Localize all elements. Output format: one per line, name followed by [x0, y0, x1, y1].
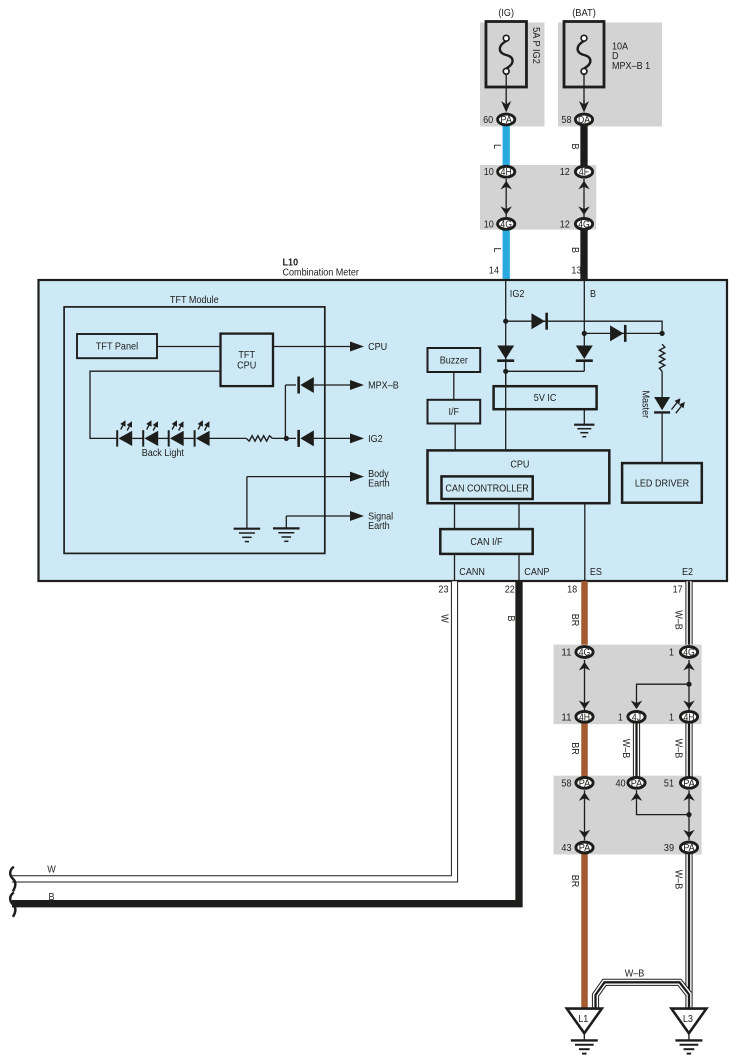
svg-text:CAN I/F: CAN I/F: [470, 537, 502, 548]
svg-text:CPU: CPU: [237, 361, 256, 372]
svg-text:Master: Master: [639, 390, 650, 418]
svg-text:18: 18: [567, 584, 577, 595]
svg-text:4H: 4H: [579, 712, 590, 723]
svg-text:E2: E2: [682, 567, 693, 578]
svg-text:ES: ES: [590, 567, 602, 578]
svg-text:4H: 4H: [501, 167, 512, 178]
svg-text:4G: 4G: [683, 648, 695, 659]
svg-text:BR: BR: [569, 875, 580, 888]
svg-text:1: 1: [669, 648, 674, 659]
svg-text:MPX–B: MPX–B: [368, 381, 399, 392]
svg-text:CPU: CPU: [368, 342, 387, 353]
svg-text:4G: 4G: [579, 648, 591, 659]
svg-text:Combination Meter: Combination Meter: [283, 267, 360, 278]
svg-text:TFT Module: TFT Module: [170, 295, 219, 306]
svg-text:TFT: TFT: [238, 350, 255, 361]
svg-text:58: 58: [561, 115, 571, 126]
svg-text:Buzzer: Buzzer: [440, 356, 469, 367]
svg-text:PA: PA: [579, 843, 591, 854]
svg-text:B: B: [569, 247, 580, 253]
svg-text:PA: PA: [500, 115, 512, 126]
svg-text:23: 23: [438, 584, 448, 595]
svg-text:43: 43: [561, 843, 571, 854]
svg-text:22: 22: [505, 584, 515, 595]
svg-text:(IG): (IG): [498, 8, 514, 19]
svg-text:B: B: [590, 289, 596, 300]
svg-text:PA: PA: [683, 778, 695, 789]
svg-text:LED DRIVER: LED DRIVER: [635, 479, 690, 490]
svg-text:11: 11: [561, 648, 571, 659]
svg-text:W–B: W–B: [620, 739, 631, 759]
svg-text:I/F: I/F: [449, 407, 460, 418]
svg-text:PA: PA: [631, 778, 643, 789]
svg-text:14: 14: [489, 266, 499, 277]
svg-text:W–B: W–B: [673, 739, 684, 759]
svg-text:1: 1: [618, 712, 623, 723]
svg-text:Earth: Earth: [368, 478, 390, 489]
svg-text:BR: BR: [569, 742, 580, 755]
svg-text:58: 58: [561, 778, 571, 789]
svg-text:IG2: IG2: [368, 434, 383, 445]
svg-text:B: B: [49, 892, 55, 903]
svg-text:4J: 4J: [632, 712, 641, 723]
svg-text:IG2: IG2: [510, 289, 525, 300]
svg-text:W: W: [438, 614, 449, 623]
svg-text:L3: L3: [683, 1014, 693, 1025]
svg-text:12: 12: [560, 167, 570, 178]
svg-text:B: B: [505, 616, 516, 622]
svg-text:11: 11: [561, 712, 571, 723]
svg-text:12: 12: [560, 219, 570, 230]
svg-text:10: 10: [484, 219, 494, 230]
svg-text:W–B: W–B: [625, 969, 645, 980]
svg-text:4G: 4G: [578, 219, 590, 230]
svg-text:51: 51: [664, 778, 674, 789]
svg-text:13: 13: [571, 266, 581, 277]
svg-text:10: 10: [484, 167, 494, 178]
svg-text:1: 1: [669, 712, 674, 723]
svg-text:5V IC: 5V IC: [534, 393, 557, 404]
svg-text:DA: DA: [578, 115, 590, 126]
svg-text:W–B: W–B: [673, 610, 684, 630]
svg-text:5A P IG2: 5A P IG2: [530, 27, 541, 64]
svg-text:PA: PA: [683, 843, 695, 854]
svg-text:MPX–B 1: MPX–B 1: [612, 61, 650, 72]
svg-text:CAN CONTROLLER: CAN CONTROLLER: [445, 483, 529, 494]
svg-text:L: L: [491, 248, 502, 253]
svg-text:4G: 4G: [500, 219, 512, 230]
svg-text:L1: L1: [578, 1014, 588, 1025]
svg-text:(BAT): (BAT): [572, 8, 596, 19]
svg-text:4H: 4H: [683, 712, 694, 723]
svg-text:CANN: CANN: [459, 567, 485, 578]
svg-text:CANP: CANP: [524, 567, 549, 578]
svg-text:W: W: [47, 864, 56, 875]
svg-text:17: 17: [673, 584, 683, 595]
svg-text:40: 40: [616, 778, 626, 789]
svg-text:Earth: Earth: [368, 521, 390, 532]
svg-text:39: 39: [664, 843, 674, 854]
svg-text:W–B: W–B: [673, 870, 684, 890]
svg-text:B: B: [569, 144, 580, 150]
svg-text:PA: PA: [579, 778, 591, 789]
svg-text:L: L: [491, 144, 502, 149]
svg-text:BR: BR: [569, 614, 580, 627]
svg-text:60: 60: [483, 115, 493, 126]
svg-text:TFT Panel: TFT Panel: [96, 342, 138, 353]
svg-text:CPU: CPU: [510, 459, 529, 470]
svg-text:Back Light: Back Light: [142, 448, 184, 459]
svg-text:4F: 4F: [579, 167, 589, 178]
